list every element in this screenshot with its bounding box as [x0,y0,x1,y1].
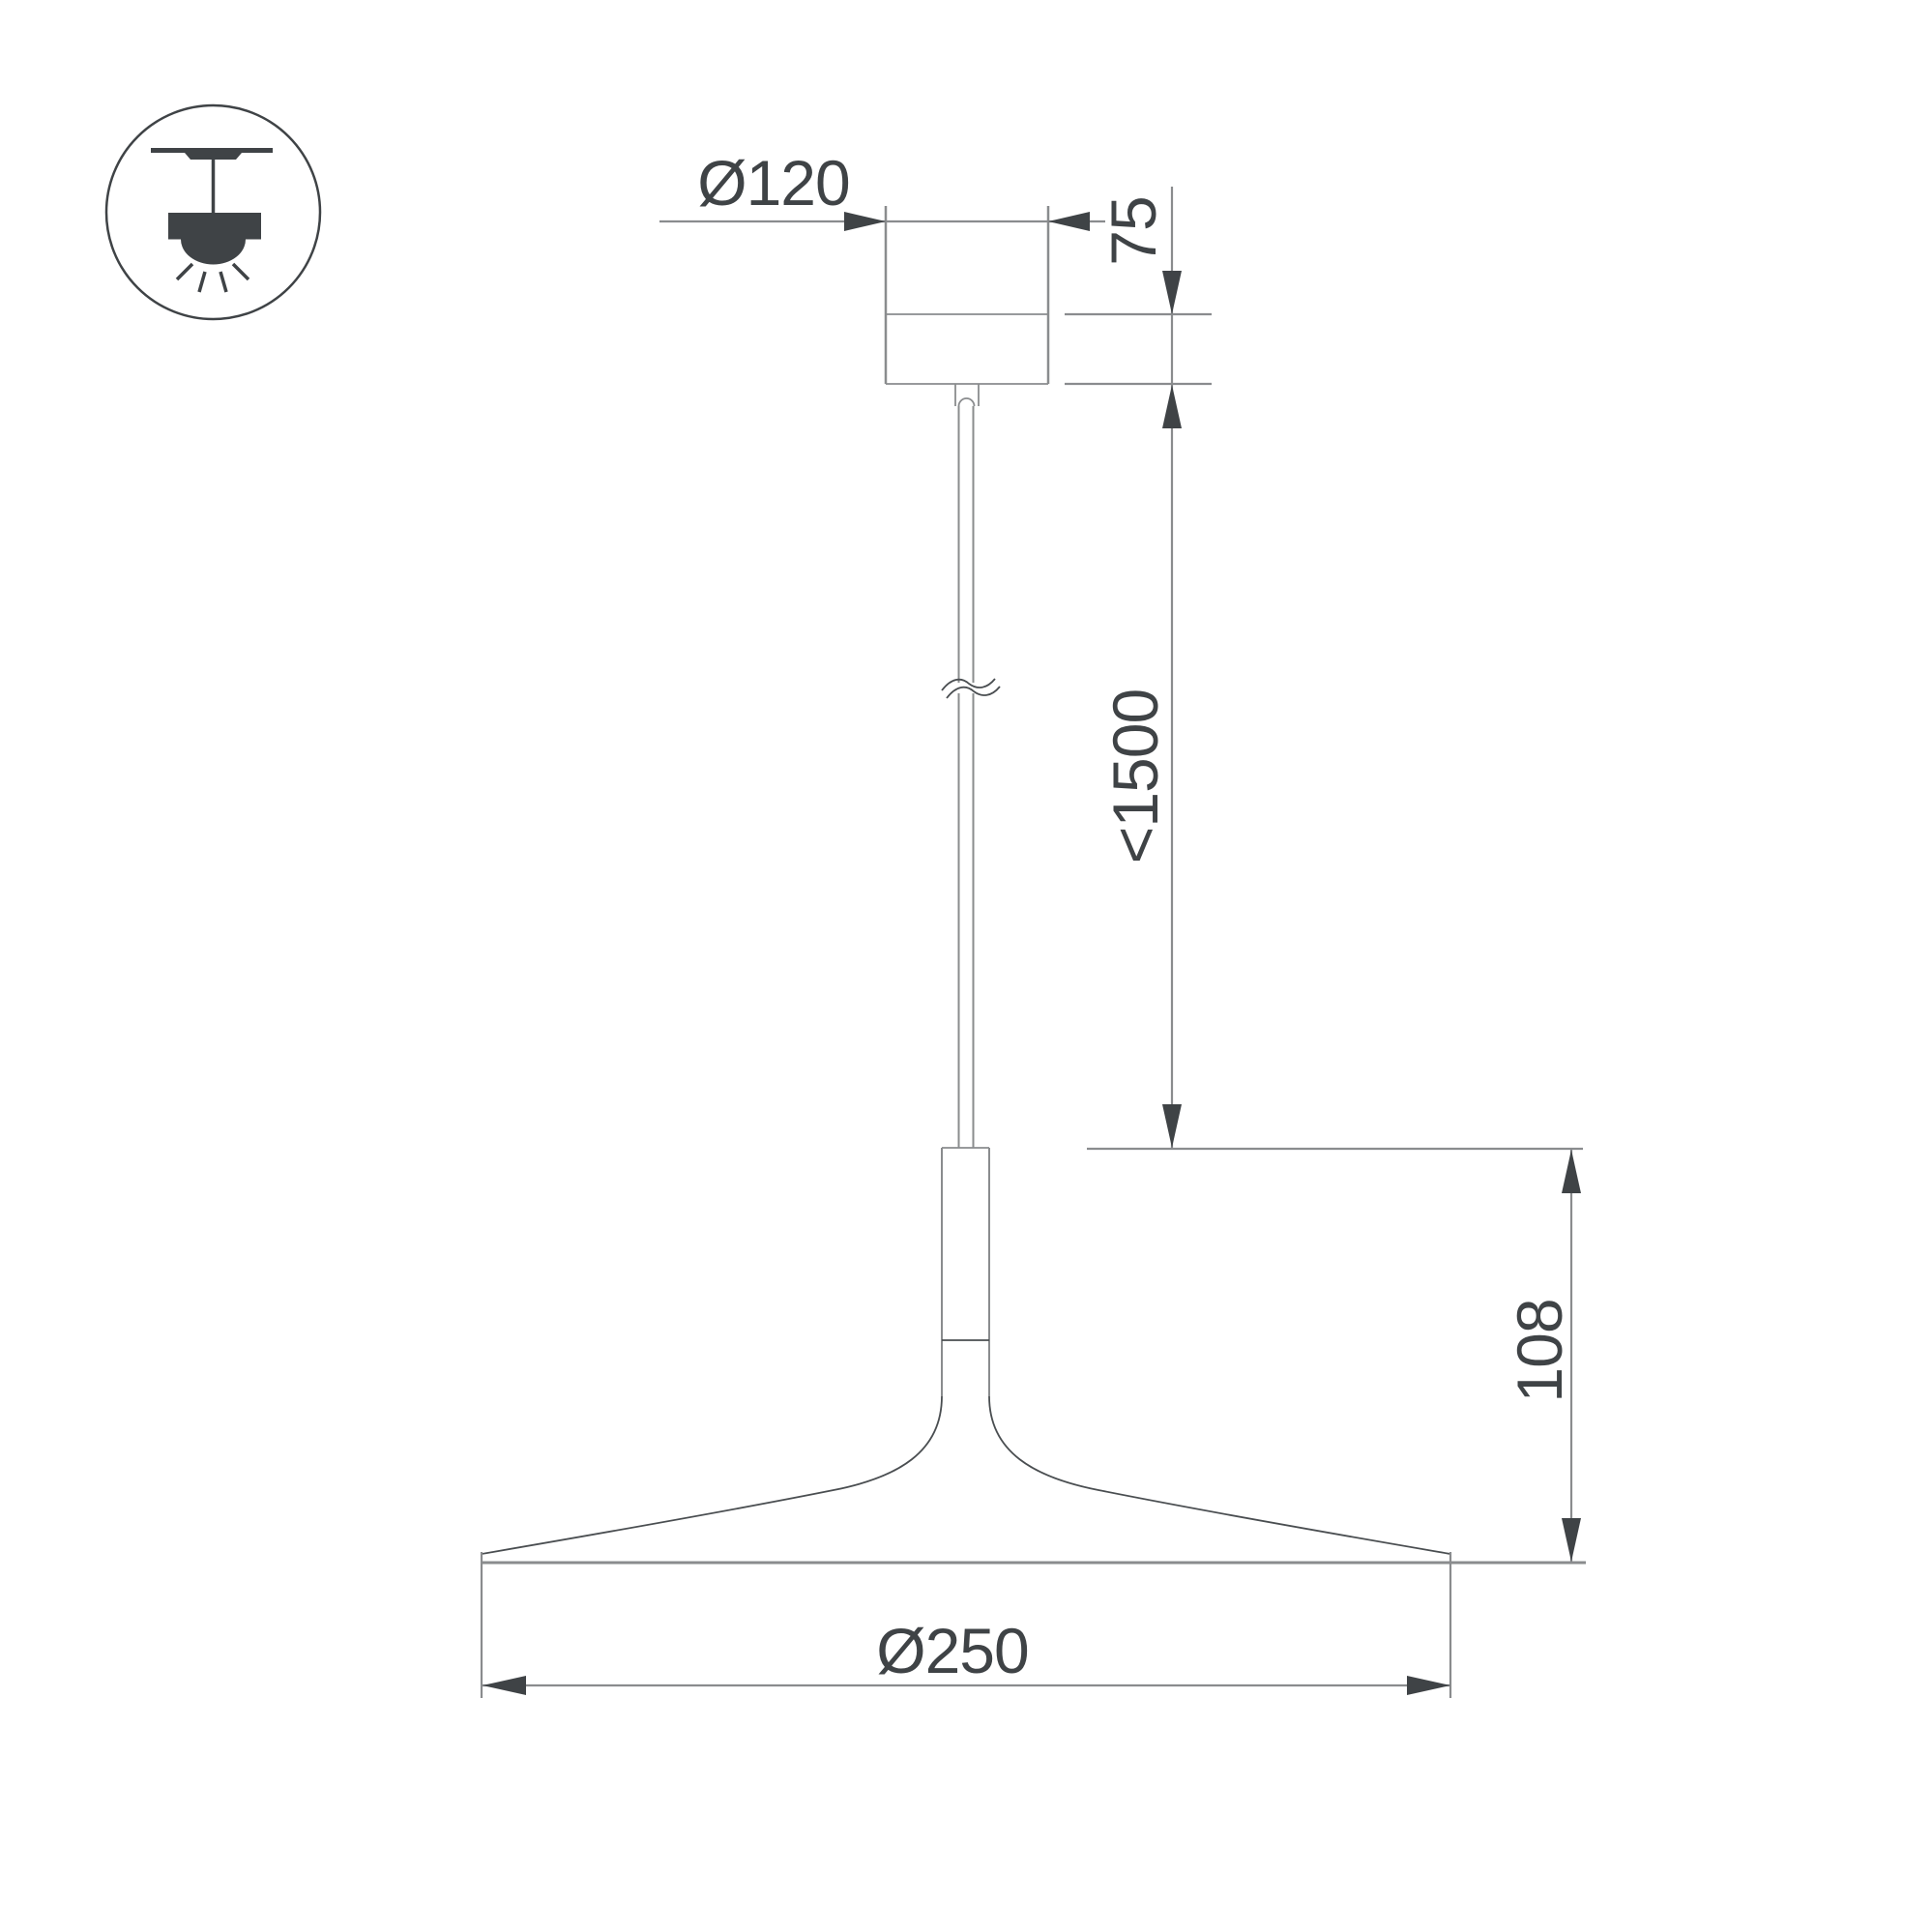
arrow-shade-diameter-right [1407,1676,1450,1695]
dimension-lines [482,187,1583,1698]
icon-canopy-shape [185,153,242,160]
label-shade-diameter: Ø250 [876,1615,1028,1686]
shade-top-left-curve [482,1396,942,1554]
label-canopy-height: 75 [1098,196,1169,265]
arrow-canopy-diameter-right [1048,212,1090,231]
arrow-canopy-height-bottom-suspension-top [1162,385,1182,428]
arrow-shade-height-top [1562,1150,1581,1193]
arrow-shade-height-bottom [1562,1518,1581,1562]
icon-light-ray [177,264,192,279]
lamp-object [482,206,1586,1563]
dimension-arrowheads [483,212,1581,1695]
arrow-shade-diameter-left [483,1676,526,1695]
icon-light-ray [220,272,226,292]
gland-dome [959,398,975,406]
dimension-labels: Ø120 75 <1500 108 Ø250 [697,147,1575,1686]
arrow-canopy-diameter-left [844,212,886,231]
arrow-canopy-height-top [1162,271,1182,314]
arrow-suspension-bottom [1162,1104,1182,1148]
drawing-page: Ø120 75 <1500 108 Ø250 [0,0,1932,1932]
label-suspension-length: <1500 [1099,689,1171,864]
lamp-dark-lines [482,679,1450,1554]
icon-lamp-diffuser [181,240,246,265]
technical-drawing: Ø120 75 <1500 108 Ø250 [0,0,1932,1932]
label-canopy-diameter: Ø120 [697,147,849,219]
icon-light-ray [199,272,205,292]
shade-top-right-curve [989,1396,1450,1554]
pendant-ceiling-mount-icon [106,105,320,319]
label-shade-height: 108 [1504,1299,1575,1402]
icon-lamp-body [168,213,261,240]
icon-light-ray [233,264,249,279]
